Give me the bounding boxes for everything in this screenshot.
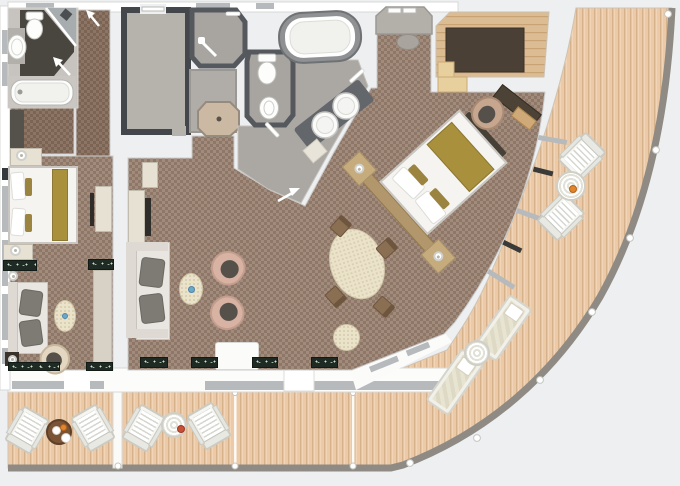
tray: [188, 286, 195, 293]
tray: [62, 313, 68, 319]
entry-door-leaf: [388, 8, 401, 13]
shower-wand-head: [198, 37, 205, 44]
entry-mat: [397, 35, 419, 50]
bed-runner: [52, 169, 68, 241]
deck-table: [46, 419, 72, 445]
marble-console: [86, 362, 113, 371]
towel-bar: [226, 12, 240, 16]
guest-bed: [8, 166, 78, 244]
tv-cabinet: [128, 190, 145, 244]
closet-rug: [446, 28, 524, 72]
foyer-door-gap: [172, 126, 186, 136]
window-sill: [205, 381, 455, 390]
entry-door-leaf: [403, 8, 416, 13]
tv: [90, 193, 94, 226]
marble-console: [3, 260, 37, 271]
tub-faucet: [18, 90, 23, 95]
secondary-bathroom: [8, 8, 78, 108]
balcony-divider-glass: [352, 390, 355, 468]
cabinet: [142, 162, 158, 188]
deck-table: [556, 171, 586, 201]
sofa: [126, 242, 168, 338]
toilet-icon: [27, 19, 43, 39]
toilet-tank: [258, 54, 276, 62]
deck-table: [464, 340, 490, 366]
tv: [145, 198, 151, 236]
table-lamp: [16, 150, 27, 161]
large-oval-bathtub: [278, 10, 363, 64]
closet-bench-step: [438, 62, 454, 77]
balcony-divider-solid: [113, 390, 122, 468]
floor-plan: [0, 0, 680, 486]
marble-console: [8, 362, 60, 371]
window-console: [311, 357, 338, 368]
foyer-door-leaf: [142, 7, 164, 11]
table-lamp: [8, 271, 18, 281]
dresser: [93, 270, 112, 363]
ottoman-pouf: [333, 324, 360, 351]
deck-table: [161, 412, 187, 438]
marble-console: [88, 259, 114, 270]
window-console: [252, 357, 278, 368]
balcony-door-left: [64, 370, 90, 390]
window-console: [191, 357, 218, 368]
corridor-carpet: [76, 10, 110, 156]
guest-dresser: [95, 186, 112, 232]
table-lamp: [10, 245, 21, 256]
balcony-door-living: [284, 370, 314, 391]
window-sill: [12, 381, 104, 389]
balcony-divider-glass: [234, 392, 237, 468]
guest-sofa: [8, 282, 46, 352]
bidet-icon: [260, 97, 279, 119]
drain: [217, 117, 222, 122]
toilet-icon: [258, 62, 276, 84]
window-console: [140, 357, 168, 368]
entry-foyer-room: [124, 10, 188, 132]
